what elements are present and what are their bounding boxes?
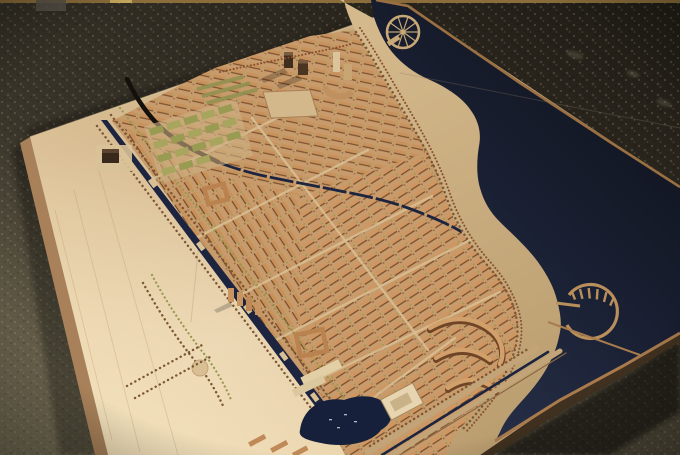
model-photo-canvas	[0, 0, 680, 455]
model-photo	[0, 0, 680, 455]
vignette	[0, 0, 680, 455]
